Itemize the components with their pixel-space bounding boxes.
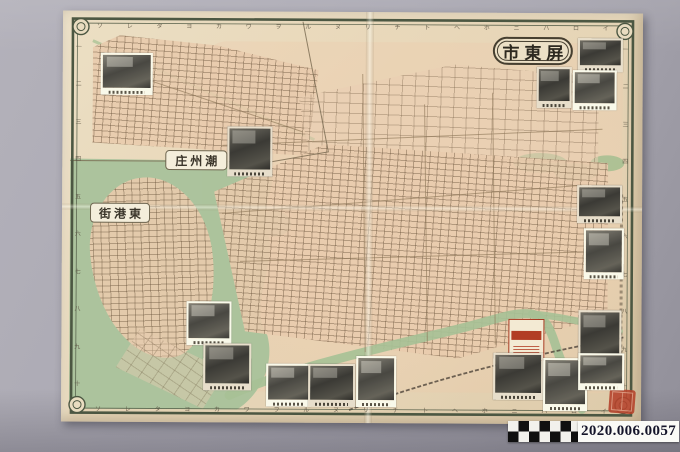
grid-letter: ホ (482, 409, 488, 415)
grid-letter: ソ (97, 24, 103, 30)
map-sheet: ソレタヨカワヲルヌリチトヘホニハロイ ソレタヨカワヲルヌリチトヘホニハロイ 一二… (61, 10, 643, 424)
grid-letter: カ (214, 407, 220, 413)
grid-letter: 九 (74, 344, 80, 350)
grid-letter: ワ (246, 24, 252, 30)
photo-inset (537, 67, 572, 108)
photo-inset (308, 364, 355, 407)
grid-letter: ト (424, 25, 430, 31)
grid-letter: ソ (95, 407, 101, 413)
grid-letter: ヌ (335, 25, 341, 31)
grid-letter: チ (392, 408, 398, 414)
catalog-number: 2020.006.0057 (578, 421, 679, 442)
photo-inset (578, 38, 623, 72)
grid-letter: 七 (75, 269, 81, 275)
grid-letter: ニ (513, 26, 519, 32)
grid-letter: 三 (75, 119, 81, 125)
photo-inset (186, 301, 231, 345)
grid-letter: タ (156, 24, 162, 30)
grid-letter: チ (394, 25, 400, 31)
grid-letter: ホ (484, 26, 490, 32)
photo-inset (356, 356, 396, 407)
photo-inset (493, 353, 543, 400)
photo-inset (227, 126, 272, 176)
grid-letter: ハ (543, 26, 549, 32)
grid-letter: イ (601, 409, 607, 415)
grid-letter: リ (365, 25, 371, 31)
grid-letter: 一 (76, 45, 82, 51)
grid-letter: ワ (244, 407, 250, 413)
grid-letter: 六 (75, 232, 81, 238)
grid-letter: 五 (75, 194, 81, 200)
calibration-checker-bar (508, 421, 578, 442)
photo-inset (573, 70, 617, 110)
grid-letter: ヌ (333, 408, 339, 414)
grid-letter: ル (305, 25, 311, 31)
grid-letter: イ (603, 26, 609, 32)
grid-letter: 四 (622, 160, 628, 166)
grid-letter: ヲ (275, 25, 281, 31)
grid-letter: レ (125, 407, 131, 413)
grid-letter: カ (216, 24, 222, 30)
photo-backdrop: ソレタヨカワヲルヌリチトヘホニハロイ ソレタヨカワヲルヌリチトヘホニハロイ 一二… (0, 0, 680, 452)
grid-letter: タ (154, 407, 160, 413)
photo-inset (578, 353, 624, 390)
grid-letter: ヘ (454, 26, 460, 32)
grid-letter: ヘ (452, 409, 458, 415)
grid-letter: 一 (623, 47, 629, 53)
photo-inset (584, 228, 624, 279)
grid-letter: ト (422, 408, 428, 414)
grid-letter: 十 (74, 381, 80, 387)
grid-letter: 八 (74, 307, 80, 313)
grid-letter: レ (127, 24, 133, 30)
grid-letter: 二 (623, 85, 629, 91)
photo-inset (266, 364, 311, 407)
grid-letter: 二 (76, 82, 82, 88)
grid-letter: ル (303, 408, 309, 414)
photo-inset (101, 53, 153, 95)
grid-letter: リ (363, 408, 369, 414)
inset-label-donggang: 街港東 (90, 203, 150, 223)
grid-letter: ヨ (184, 407, 190, 413)
map-title: 市東屏 (502, 38, 568, 63)
grid-letter: ニ (511, 409, 517, 415)
grid-letter: ロ (573, 26, 579, 32)
collection-seal (608, 388, 636, 414)
photo-inset (577, 185, 622, 223)
map-title-box: 市東屏 (493, 37, 573, 65)
grid-letter: 三 (622, 122, 628, 128)
inset-label-chaozhou: 庄州潮 (165, 150, 227, 170)
grid-letter: ヲ (273, 408, 279, 414)
grid-letter: ヨ (186, 24, 192, 30)
photo-inset (203, 343, 251, 390)
grid-letter: 四 (75, 157, 81, 163)
